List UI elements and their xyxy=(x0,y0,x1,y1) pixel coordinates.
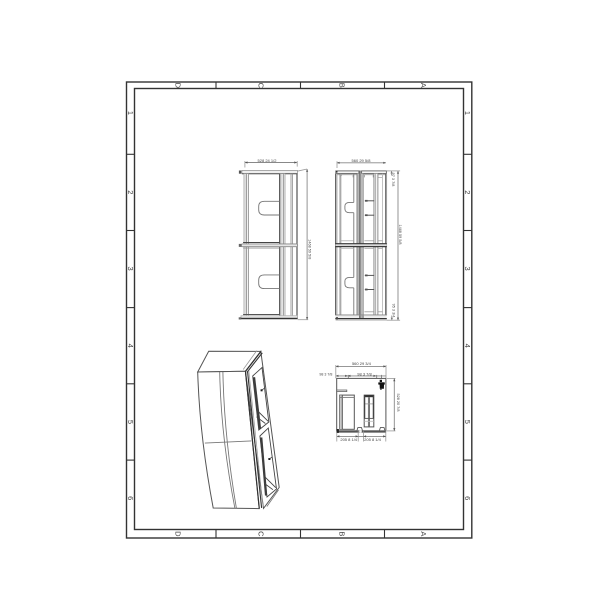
svg-text:B: B xyxy=(337,83,346,88)
svg-text:C: C xyxy=(256,83,265,89)
svg-text:5: 5 xyxy=(463,420,472,424)
svg-text:528 24 1/2: 528 24 1/2 xyxy=(258,158,278,163)
svg-text:560 29 5/8: 560 29 5/8 xyxy=(352,158,372,163)
svg-text:D: D xyxy=(173,531,182,537)
svg-text:5: 5 xyxy=(126,420,135,424)
svg-text:6: 6 xyxy=(463,496,472,500)
svg-text:98 3 7/8: 98 3 7/8 xyxy=(357,371,372,376)
svg-text:560 29 3/4: 560 29 3/4 xyxy=(352,361,372,366)
svg-text:B: B xyxy=(337,531,346,536)
svg-text:3: 3 xyxy=(126,267,135,271)
svg-text:1468 59 5/8: 1468 59 5/8 xyxy=(398,224,402,244)
svg-text:C: C xyxy=(256,531,265,537)
svg-text:4: 4 xyxy=(463,344,472,348)
svg-text:1: 1 xyxy=(463,111,472,115)
svg-text:1468 59 5/8: 1468 59 5/8 xyxy=(307,239,311,259)
svg-text:A: A xyxy=(419,83,428,88)
svg-text:6: 6 xyxy=(126,496,135,500)
svg-text:98 3 7/8: 98 3 7/8 xyxy=(319,372,332,376)
svg-text:4: 4 xyxy=(126,344,135,348)
svg-text:2: 2 xyxy=(126,190,135,194)
svg-text:1: 1 xyxy=(126,111,135,115)
svg-text:2: 2 xyxy=(463,190,472,194)
svg-text:95 3 3/4: 95 3 3/4 xyxy=(392,304,396,318)
svg-text:A: A xyxy=(419,531,428,536)
svg-text:205 8 1/4: 205 8 1/4 xyxy=(340,437,357,442)
svg-text:97 3 7/8: 97 3 7/8 xyxy=(391,173,395,187)
svg-text:205 8 1/4: 205 8 1/4 xyxy=(364,437,381,442)
svg-text:D: D xyxy=(173,83,182,89)
svg-text:3: 3 xyxy=(463,267,472,271)
svg-text:528 20 7/8: 528 20 7/8 xyxy=(396,394,400,412)
